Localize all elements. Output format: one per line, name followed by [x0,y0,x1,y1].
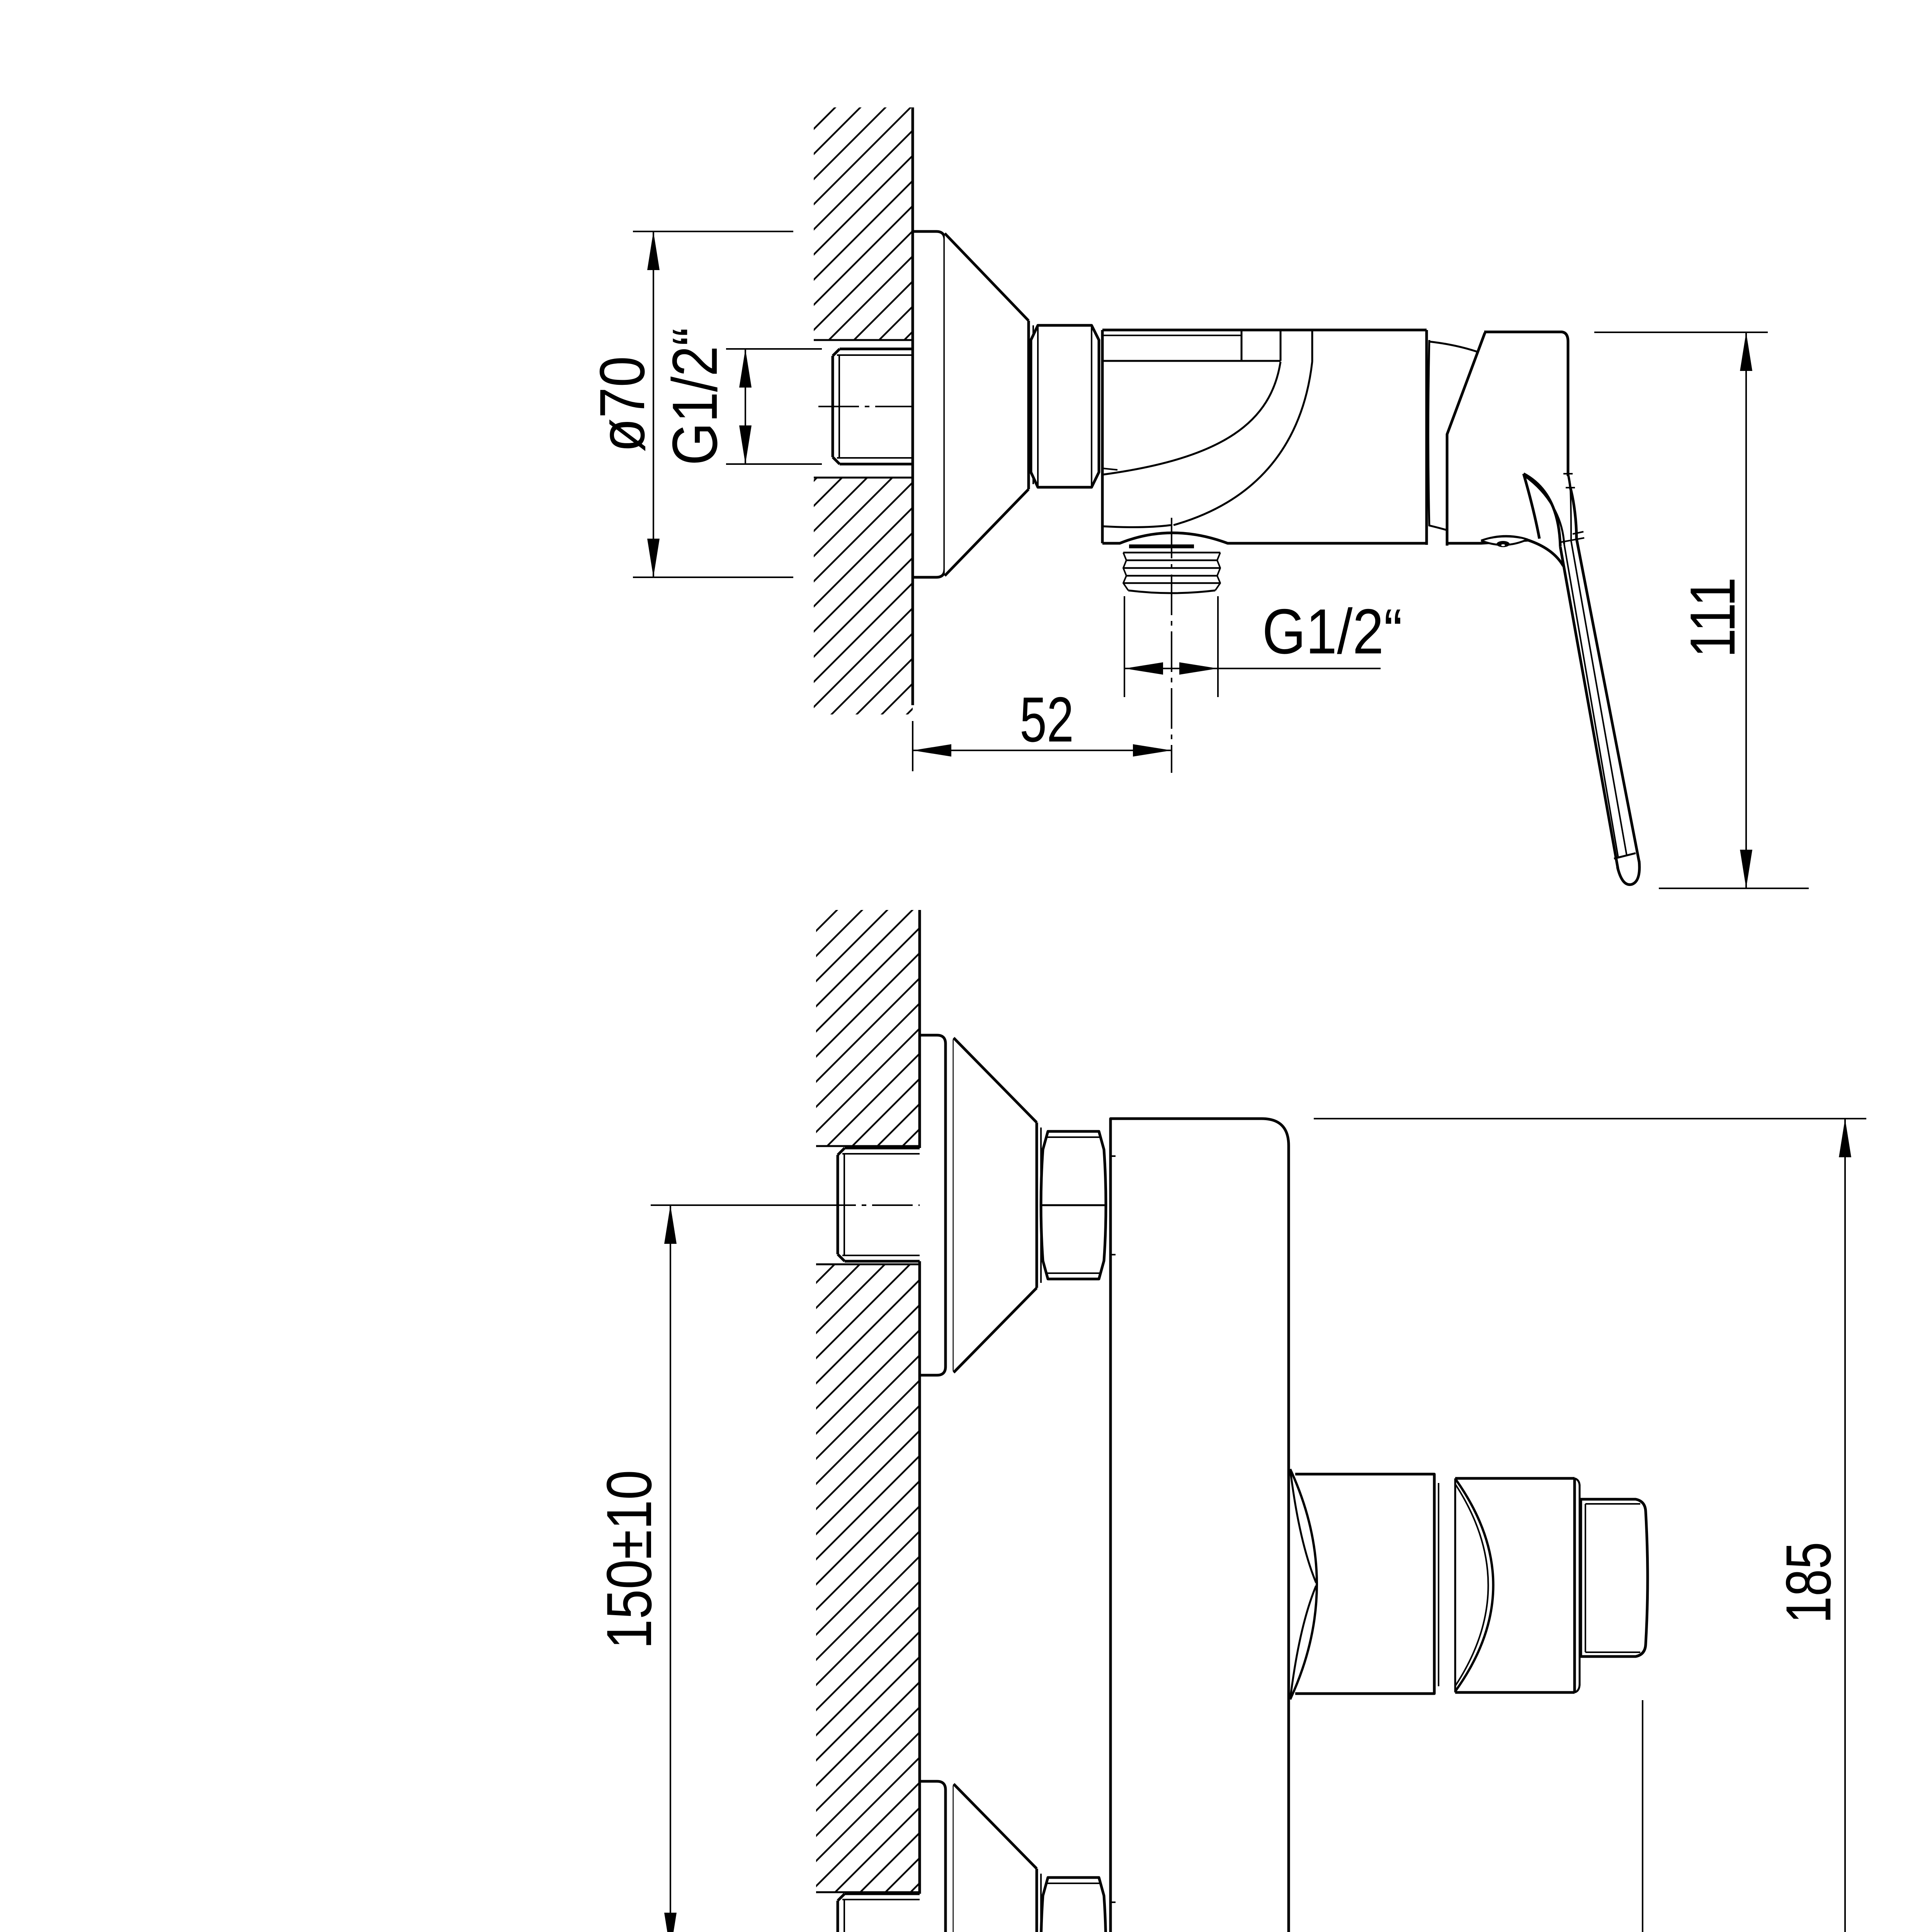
svg-text:111: 111 [1677,577,1748,658]
svg-text:G1/2“: G1/2“ [1262,596,1403,667]
svg-text:G1/2“: G1/2“ [659,328,730,466]
svg-text:52: 52 [1020,684,1074,755]
svg-text:ø70: ø70 [587,356,658,452]
svg-text:150±10: 150±10 [594,1470,665,1649]
svg-text:185: 185 [1773,1542,1844,1624]
